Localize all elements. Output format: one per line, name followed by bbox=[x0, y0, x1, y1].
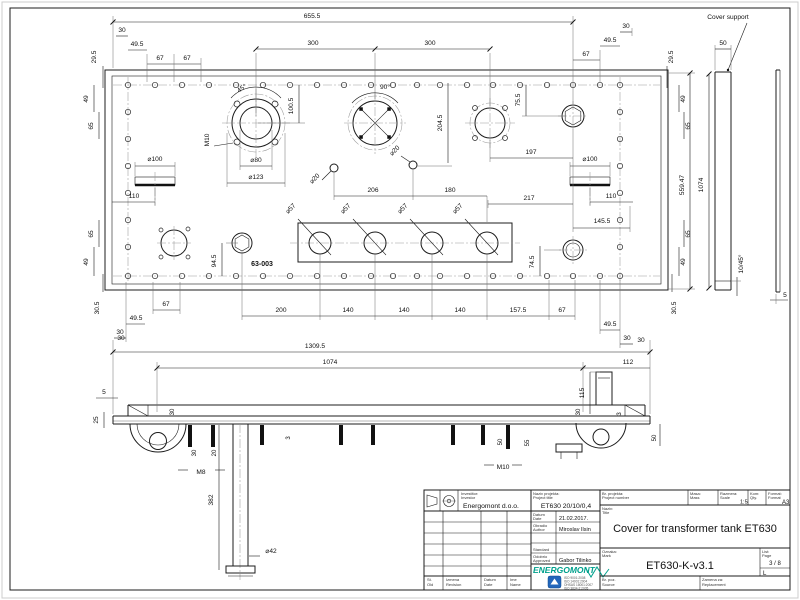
dim-label: 3 bbox=[617, 412, 623, 416]
dim-label: ⌀57 bbox=[396, 202, 409, 215]
dim-label: 140 bbox=[454, 307, 465, 314]
cert-line: ISO 3834-2:2005 bbox=[564, 587, 589, 591]
drawing-frame bbox=[10, 8, 790, 590]
dim-label: 25 bbox=[93, 416, 100, 424]
page-edge bbox=[2, 2, 798, 598]
dim-label: 110 bbox=[606, 193, 617, 200]
investor-value: Energomont d.o.o. bbox=[463, 503, 519, 510]
dim-label: 49.5 bbox=[604, 37, 617, 44]
dim-label: 1074 bbox=[698, 177, 705, 192]
dim-label: ⌀42 bbox=[265, 548, 277, 555]
dim-label: 180 bbox=[444, 187, 455, 194]
dim-label: 3 bbox=[286, 436, 292, 440]
dim-label: 30 bbox=[576, 408, 582, 415]
dim-label: ⌀100 bbox=[148, 156, 163, 163]
dim-label: 30 bbox=[637, 337, 645, 344]
dim-label: 204.5 bbox=[437, 114, 444, 131]
investor-label-en: Investor bbox=[461, 495, 476, 500]
cover-support-label: Cover support bbox=[707, 14, 749, 21]
dim-label: ⌀20 bbox=[388, 144, 401, 157]
flange-b bbox=[344, 92, 406, 154]
rev-col-label-en: Old bbox=[427, 582, 433, 587]
mark-label-en: Mark bbox=[602, 553, 611, 558]
projection-symbol-cone bbox=[427, 495, 437, 507]
cover-support-detail: Cover support 50 1074 10/45° 5 bbox=[698, 14, 788, 304]
dim-label: 5 bbox=[783, 292, 787, 299]
dim-label: 67 bbox=[162, 301, 170, 308]
dim-label: 115 bbox=[579, 387, 586, 398]
name-col-label-en: Name bbox=[510, 582, 521, 587]
format-value: A3 bbox=[782, 500, 790, 506]
approved-value: Gabor Tilinko bbox=[559, 558, 591, 564]
dim-label: 30.5 bbox=[94, 301, 101, 314]
title-label-en: Title bbox=[602, 510, 610, 515]
chamfer-label: 10/45° bbox=[737, 254, 745, 274]
dim-label: 559.47 bbox=[679, 175, 686, 196]
dim-label: 49.5 bbox=[131, 41, 144, 48]
dim-label: 74.5 bbox=[529, 255, 536, 268]
dim-label: ⌀20 bbox=[308, 172, 321, 185]
dim-label: 140 bbox=[398, 307, 409, 314]
dim-label: ⌀57 bbox=[284, 202, 297, 215]
thread-label: M10 bbox=[497, 464, 510, 471]
dim-label: 49 bbox=[83, 258, 90, 266]
dim-label: 67 bbox=[582, 51, 590, 58]
dim-label: 67 bbox=[156, 55, 164, 62]
flange-a bbox=[214, 87, 290, 157]
replacement-label-en: Replacement bbox=[702, 582, 726, 587]
source-label-en: Source bbox=[602, 582, 615, 587]
date-col-label-en: Date bbox=[484, 582, 493, 587]
dim-label: ⌀100 bbox=[583, 156, 598, 163]
dim-label: 67 bbox=[558, 307, 566, 314]
dim-label: 94.5 bbox=[211, 254, 218, 267]
approved-label-en: Approved bbox=[533, 558, 550, 563]
dim-label: 50 bbox=[652, 434, 658, 441]
dim-label: 75.5 bbox=[515, 93, 522, 106]
dim-label: 197 bbox=[525, 149, 536, 156]
dim-label: 30 bbox=[192, 449, 198, 456]
dim-label: 206 bbox=[367, 187, 378, 194]
dim-label: 140 bbox=[342, 307, 353, 314]
dim-label: 30 bbox=[622, 23, 630, 30]
bolt-holes bbox=[125, 82, 622, 278]
dim-label: 655.5 bbox=[304, 13, 321, 20]
double-ring bbox=[559, 236, 587, 264]
small-flange bbox=[157, 226, 191, 260]
dim-label: 30 bbox=[117, 335, 125, 342]
dim-label: 50 bbox=[719, 40, 727, 47]
drawing-sheet: 655.5 300 300 30 49.5 67 67 30 49.5 67 2… bbox=[0, 0, 800, 600]
dim-label: 157.5 bbox=[510, 307, 527, 314]
dim-label: 200 bbox=[275, 307, 286, 314]
project-value: ET630 20/10/0,4 bbox=[541, 503, 591, 510]
dim-label: 65 bbox=[88, 230, 95, 238]
dim-label: ⌀123 bbox=[249, 174, 264, 181]
dim-label: 49 bbox=[680, 258, 687, 266]
change-col-label-en: Revision bbox=[446, 582, 461, 587]
page-value: 3 / 8 bbox=[769, 561, 781, 567]
dim-label: 55 bbox=[525, 439, 531, 446]
date-value: 21.02.2017. bbox=[559, 516, 589, 522]
pipe-row bbox=[290, 219, 520, 262]
author-label-en: Author bbox=[533, 527, 545, 532]
dim-label: 30 bbox=[118, 27, 126, 34]
small-hole-a bbox=[322, 164, 338, 180]
format-label-en: Format bbox=[768, 495, 782, 500]
dim-label: 65 bbox=[685, 122, 692, 130]
dim-label: 65 bbox=[685, 230, 692, 238]
dim-label: ⌀57 bbox=[339, 202, 352, 215]
thread-label: M10 bbox=[204, 133, 211, 146]
project-label-en: Project title bbox=[533, 495, 554, 500]
drawing-number: ET630-K-v3.1 bbox=[646, 560, 714, 572]
dim-label: 110 bbox=[129, 193, 140, 200]
dim-label: 5 bbox=[102, 389, 106, 396]
plan-view: 655.5 300 300 30 49.5 67 67 30 49.5 67 2… bbox=[83, 13, 695, 348]
dim-label: 30 bbox=[623, 335, 631, 342]
dim-label: 382 bbox=[208, 494, 215, 505]
plan-dimensions: 655.5 300 300 30 49.5 67 67 30 49.5 67 2… bbox=[83, 13, 692, 348]
dim-label: 145.5 bbox=[594, 218, 611, 225]
dim-label: ⌀57 bbox=[451, 202, 464, 215]
dim-label: 300 bbox=[424, 40, 435, 47]
dim-label: 1074 bbox=[323, 359, 338, 366]
dim-label: ⌀80 bbox=[250, 157, 262, 164]
dim-label: 67 bbox=[183, 55, 191, 62]
dim-label: 112 bbox=[623, 359, 634, 366]
dim-label: 300 bbox=[307, 40, 318, 47]
dim-label: 65 bbox=[88, 122, 95, 130]
mass-label-en: Mass bbox=[690, 495, 700, 500]
dim-label: 1309.5 bbox=[305, 343, 326, 350]
small-hole-b bbox=[401, 156, 417, 169]
thread-label: M8 bbox=[196, 469, 205, 476]
dim-label: 20 bbox=[212, 449, 218, 456]
dim-label: 30.5 bbox=[671, 301, 678, 314]
cad-drawing: 655.5 300 300 30 49.5 67 67 30 49.5 67 2… bbox=[0, 0, 800, 600]
dim-label: 49 bbox=[680, 95, 687, 103]
project-number-label-en: Project number bbox=[602, 495, 630, 500]
dim-label: 29.5 bbox=[668, 50, 675, 63]
scale-label-en: Scale bbox=[720, 495, 731, 500]
qty-label-en: Qty. bbox=[750, 495, 757, 500]
dim-label: 50 bbox=[498, 438, 504, 445]
dim-label: 30 bbox=[170, 408, 176, 415]
author-value: Miroslav Ilsin bbox=[559, 527, 591, 533]
dim-label: 49.5 bbox=[604, 321, 617, 328]
dim-label: 49.5 bbox=[130, 315, 143, 322]
page-label-en: Page bbox=[762, 553, 772, 558]
title-block: Investitor: Investor Energomont d.o.o. S… bbox=[424, 490, 790, 591]
dim-label: 100.5 bbox=[288, 97, 295, 114]
date-label-en: Date bbox=[533, 516, 542, 521]
dim-label: 49 bbox=[83, 95, 90, 103]
dim-label: 29.5 bbox=[91, 50, 98, 63]
dim-label: 217 bbox=[523, 195, 534, 202]
scale-value: 1:5 bbox=[740, 500, 748, 506]
drawing-title: Cover for transformer tank ET630 bbox=[613, 523, 777, 535]
part-ref-label: 63-003 bbox=[251, 261, 273, 268]
angle-label: 90° bbox=[380, 83, 390, 91]
standard-label: Standard bbox=[533, 547, 549, 552]
